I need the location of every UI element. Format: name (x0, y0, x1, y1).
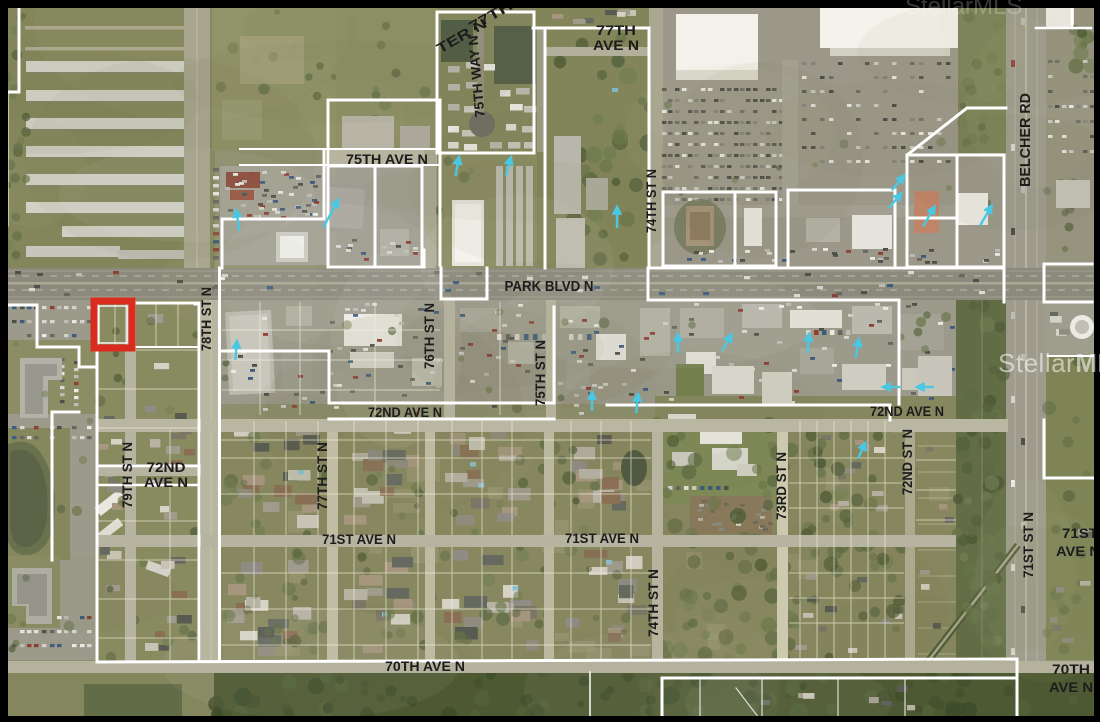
svg-text:77TH: 77TH (596, 22, 636, 38)
svg-text:AVE N: AVE N (593, 37, 639, 53)
svg-text:StellarMLS: StellarMLS (998, 348, 1100, 378)
svg-text:76TH ST N: 76TH ST N (421, 303, 437, 369)
svg-text:77TH ST N: 77TH ST N (314, 442, 330, 510)
svg-text:StellarMLS: StellarMLS (905, 0, 1022, 20)
svg-text:73RD ST N: 73RD ST N (773, 452, 789, 520)
svg-text:71ST ST N: 71ST ST N (1020, 512, 1036, 578)
svg-text:71ST AVE N: 71ST AVE N (565, 530, 639, 546)
svg-text:75TH AVE N: 75TH AVE N (346, 151, 428, 167)
svg-text:74TH ST N: 74TH ST N (645, 569, 661, 637)
svg-text:AVE N: AVE N (1056, 543, 1100, 559)
svg-text:72ND ST N: 72ND ST N (899, 429, 915, 495)
svg-text:72ND: 72ND (147, 459, 186, 475)
svg-text:70TH: 70TH (1052, 661, 1090, 677)
svg-text:75TH ST N: 75TH ST N (532, 340, 548, 406)
svg-text:BELCHER RD: BELCHER RD (1017, 93, 1034, 187)
svg-text:AVE N: AVE N (144, 474, 188, 490)
svg-text:74TH ST N: 74TH ST N (643, 169, 659, 233)
svg-text:71ST AVE N: 71ST AVE N (322, 531, 396, 547)
svg-text:PARK BLVD N: PARK BLVD N (505, 278, 594, 295)
svg-text:79TH ST N: 79TH ST N (119, 442, 135, 508)
svg-text:71ST: 71ST (1062, 525, 1098, 541)
svg-text:78TH ST N: 78TH ST N (198, 287, 214, 351)
svg-text:72ND AVE N: 72ND AVE N (870, 403, 944, 419)
svg-text:AVE N: AVE N (1049, 679, 1093, 695)
svg-text:70TH AVE N: 70TH AVE N (385, 658, 465, 674)
svg-text:72ND AVE N: 72ND AVE N (368, 404, 442, 420)
